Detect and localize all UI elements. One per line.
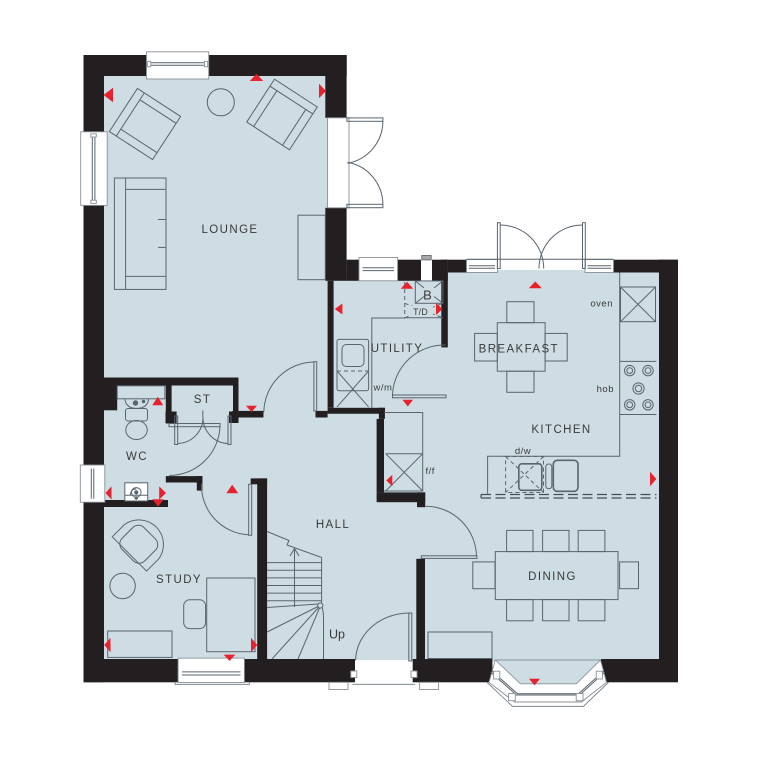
svg-text:Up: Up xyxy=(329,628,345,642)
svg-text:LOUNGE: LOUNGE xyxy=(202,224,259,236)
svg-text:f/f: f/f xyxy=(426,466,435,477)
svg-text:T/D: T/D xyxy=(413,307,428,317)
svg-text:HALL: HALL xyxy=(316,519,350,531)
svg-text:WC: WC xyxy=(126,451,148,463)
svg-text:B: B xyxy=(423,288,432,303)
svg-text:d/w: d/w xyxy=(515,446,531,457)
svg-text:w/m: w/m xyxy=(373,383,393,394)
svg-text:STUDY: STUDY xyxy=(156,574,202,586)
svg-text:ST: ST xyxy=(194,394,212,406)
svg-text:hob: hob xyxy=(597,384,614,395)
svg-text:BREAKFAST: BREAKFAST xyxy=(479,344,559,356)
svg-text:KITCHEN: KITCHEN xyxy=(531,424,591,436)
svg-text:oven: oven xyxy=(590,299,613,310)
svg-text:DINING: DINING xyxy=(528,571,577,583)
